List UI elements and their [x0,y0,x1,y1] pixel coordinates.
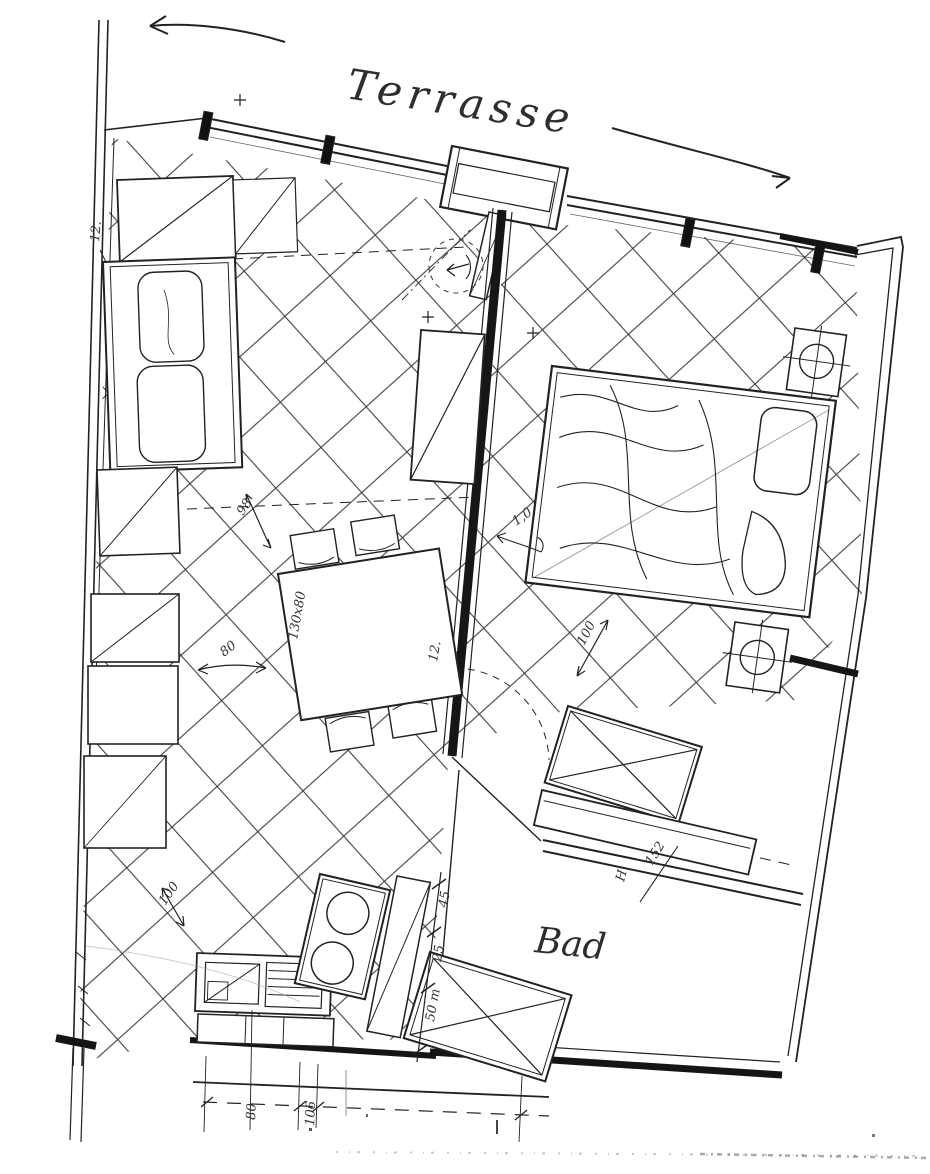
scanned-floor-plan: Terrasse Bad 12. 12. 98 130x80 80 1,0 10… [0,0,930,1174]
svg-text:45: 45 [436,890,454,910]
note-left-wall: 12. [88,220,106,262]
tall-cabinet [411,330,485,484]
terrace-label: Terrasse [343,59,579,143]
left-cabinets [84,467,180,848]
terrace-arrow-left [150,16,285,42]
bathroom-label: Bad [532,920,608,968]
svg-text:106: 106 [303,1101,319,1127]
terrace-arrow-right [612,128,790,188]
kitchen-base-cabinet [197,1014,334,1047]
wardrobe [117,174,298,262]
bottom-walls [56,1038,782,1142]
daybed-sofa [103,257,242,471]
svg-text:12.: 12. [88,220,105,242]
svg-text:25: 25 [430,944,448,964]
svg-text:H: H [613,868,631,884]
floor-plan-drawing: Terrasse Bad 12. 12. 98 130x80 80 1,0 10… [0,0,930,1174]
svg-text:80: 80 [244,1103,260,1120]
double-bed [525,366,835,617]
